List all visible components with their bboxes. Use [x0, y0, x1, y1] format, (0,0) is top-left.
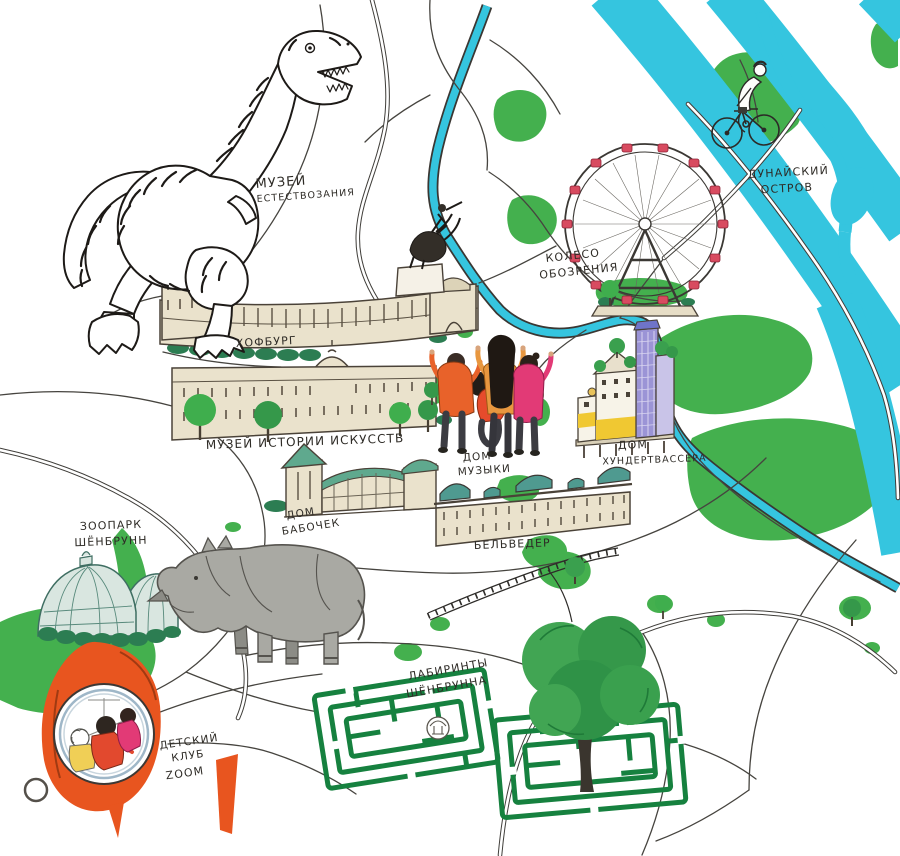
label-text: ДЕТСКИЙ [159, 731, 220, 752]
family-looking-at-map [429, 335, 553, 458]
family-girl-hair [488, 335, 516, 409]
statue-pedestal [396, 264, 444, 296]
landmark-belvedere [434, 467, 632, 546]
statue-rider-head [438, 204, 446, 212]
hw-roof-tree [594, 360, 606, 372]
label-natural-history-museum: МУЗЕЙ ЕСТЕСТВОЗАНИЯ [255, 169, 355, 205]
kid-pink-shirt [117, 720, 140, 752]
tree [843, 599, 861, 626]
hw-roof-tree [666, 346, 678, 358]
maze-gazebo [427, 717, 449, 739]
park-prater-a [653, 315, 812, 414]
park-blob [225, 522, 241, 532]
machine-fin-right [216, 754, 238, 834]
label-ferris-wheel: КОЛЕСО ОБОЗРЕНИЯ [537, 245, 619, 282]
belvedere-cap [568, 478, 584, 489]
label-text: ДОМ [618, 438, 648, 452]
hw-roof-tree [624, 356, 636, 368]
label-house-of-music: ДОМ МУЗЫКИ [456, 449, 511, 479]
hw-tower-cap [634, 320, 660, 330]
hw-gable-yellow [596, 416, 638, 440]
kid-yellow-shirt [69, 744, 95, 772]
rhino-eye [194, 576, 198, 580]
hw-right-block [656, 354, 674, 436]
label-schoenbrunn-zoo: ЗООПАРК ШЁНБРУНН [74, 518, 148, 550]
belvedere-dome-right [598, 467, 630, 484]
wheel-base [592, 306, 698, 316]
hw-roof-tree [609, 338, 625, 354]
hw-tower [636, 328, 658, 438]
rhino-body [157, 545, 364, 642]
dino-near-thigh [186, 247, 248, 309]
dino-far-foot [89, 314, 139, 354]
label-text: КЛУБ [171, 748, 206, 765]
rhinoceros [148, 536, 364, 664]
belvedere-dome-left [440, 484, 470, 501]
statue-horse [410, 232, 446, 262]
label-text: ZOOM [165, 764, 205, 782]
tree [655, 595, 671, 619]
park-blob [394, 643, 422, 661]
machine-handle-ring [25, 779, 47, 801]
label-text: ДОМ [462, 450, 492, 464]
palmhouse-lantern [80, 552, 92, 566]
label-belvedere: БЕЛЬВЕДЕР [474, 536, 551, 552]
vienna-illustrated-map: МУЗЕЙ ЕСТЕСТВОЗАНИЯ ХОФБУРГ МУЗЕЙ ИСТОРИ… [0, 0, 900, 856]
label-text: ОСТРОВ [760, 181, 813, 197]
machine-fin-bottom [108, 802, 124, 838]
label-text: ШЁНБРУНН [74, 534, 148, 550]
belvedere-cap [484, 487, 500, 498]
hw-gold-dome [588, 388, 596, 396]
label-text: ЗООПАРК [80, 518, 143, 533]
label-text: МУЗЫКИ [457, 463, 511, 479]
label-kids-club-zoom: ДЕТСКИЙ КЛУБ ZOOM [159, 731, 224, 783]
railway [428, 548, 619, 622]
label-text: МУЗЕЙ [255, 172, 307, 192]
label-schoenbrunn-labyrinths: ЛАБИРИНТЫ ШЁНБРУННА [402, 656, 492, 700]
family-mother-jacket [438, 362, 474, 417]
park-patch [507, 195, 557, 244]
cyclist-head [754, 64, 766, 76]
label-text: БЕЛЬВЕДЕР [474, 536, 551, 552]
park-patch [494, 90, 547, 142]
family-right-jacket [514, 364, 544, 423]
